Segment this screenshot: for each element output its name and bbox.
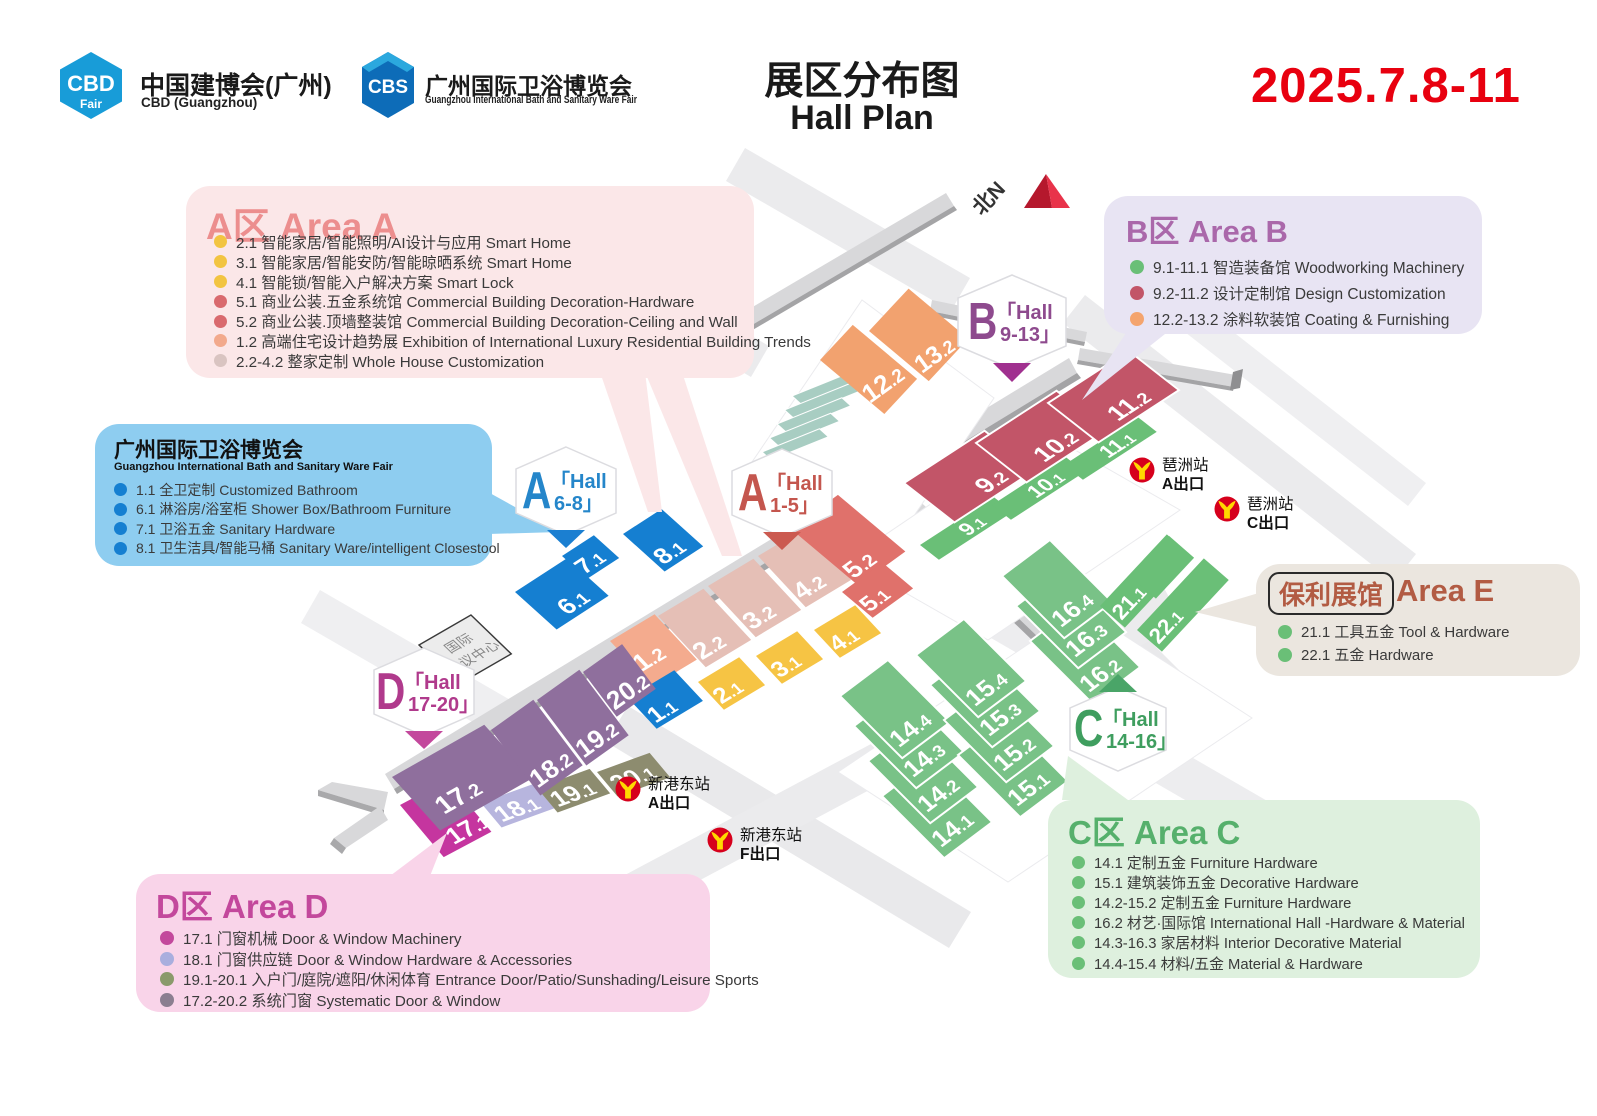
- svg-text:B: B: [968, 292, 997, 350]
- svg-text:「Hall: 「Hall: [550, 469, 607, 493]
- svg-text:A: A: [738, 463, 767, 521]
- svg-text:A: A: [522, 461, 551, 519]
- svg-text:「Hall: 「Hall: [996, 300, 1053, 324]
- svg-text:「Hall: 「Hall: [1102, 707, 1159, 731]
- svg-text:「Hall: 「Hall: [404, 670, 461, 694]
- svg-text:新港东站: 新港东站: [740, 826, 802, 844]
- svg-text:琶洲站: 琶洲站: [1162, 456, 1209, 474]
- svg-text:C: C: [1074, 699, 1103, 757]
- svg-text:A出口: A出口: [648, 793, 690, 812]
- svg-text:C出口: C出口: [1247, 513, 1289, 532]
- svg-text:1-5」: 1-5」: [770, 495, 819, 517]
- svg-text:A出口: A出口: [1162, 474, 1204, 493]
- svg-text:新港东站: 新港东站: [648, 775, 710, 793]
- svg-text:北N: 北N: [968, 177, 1010, 219]
- svg-text:14-16」: 14-16」: [1106, 731, 1177, 753]
- svg-text:D: D: [376, 662, 405, 720]
- svg-text:17-20」: 17-20」: [408, 694, 479, 716]
- svg-text:琶洲站: 琶洲站: [1247, 495, 1294, 513]
- svg-text:「Hall: 「Hall: [766, 471, 823, 495]
- svg-text:6-8」: 6-8」: [554, 493, 603, 515]
- svg-text:F出口: F出口: [740, 844, 780, 863]
- svg-text:9-13」: 9-13」: [1000, 324, 1060, 346]
